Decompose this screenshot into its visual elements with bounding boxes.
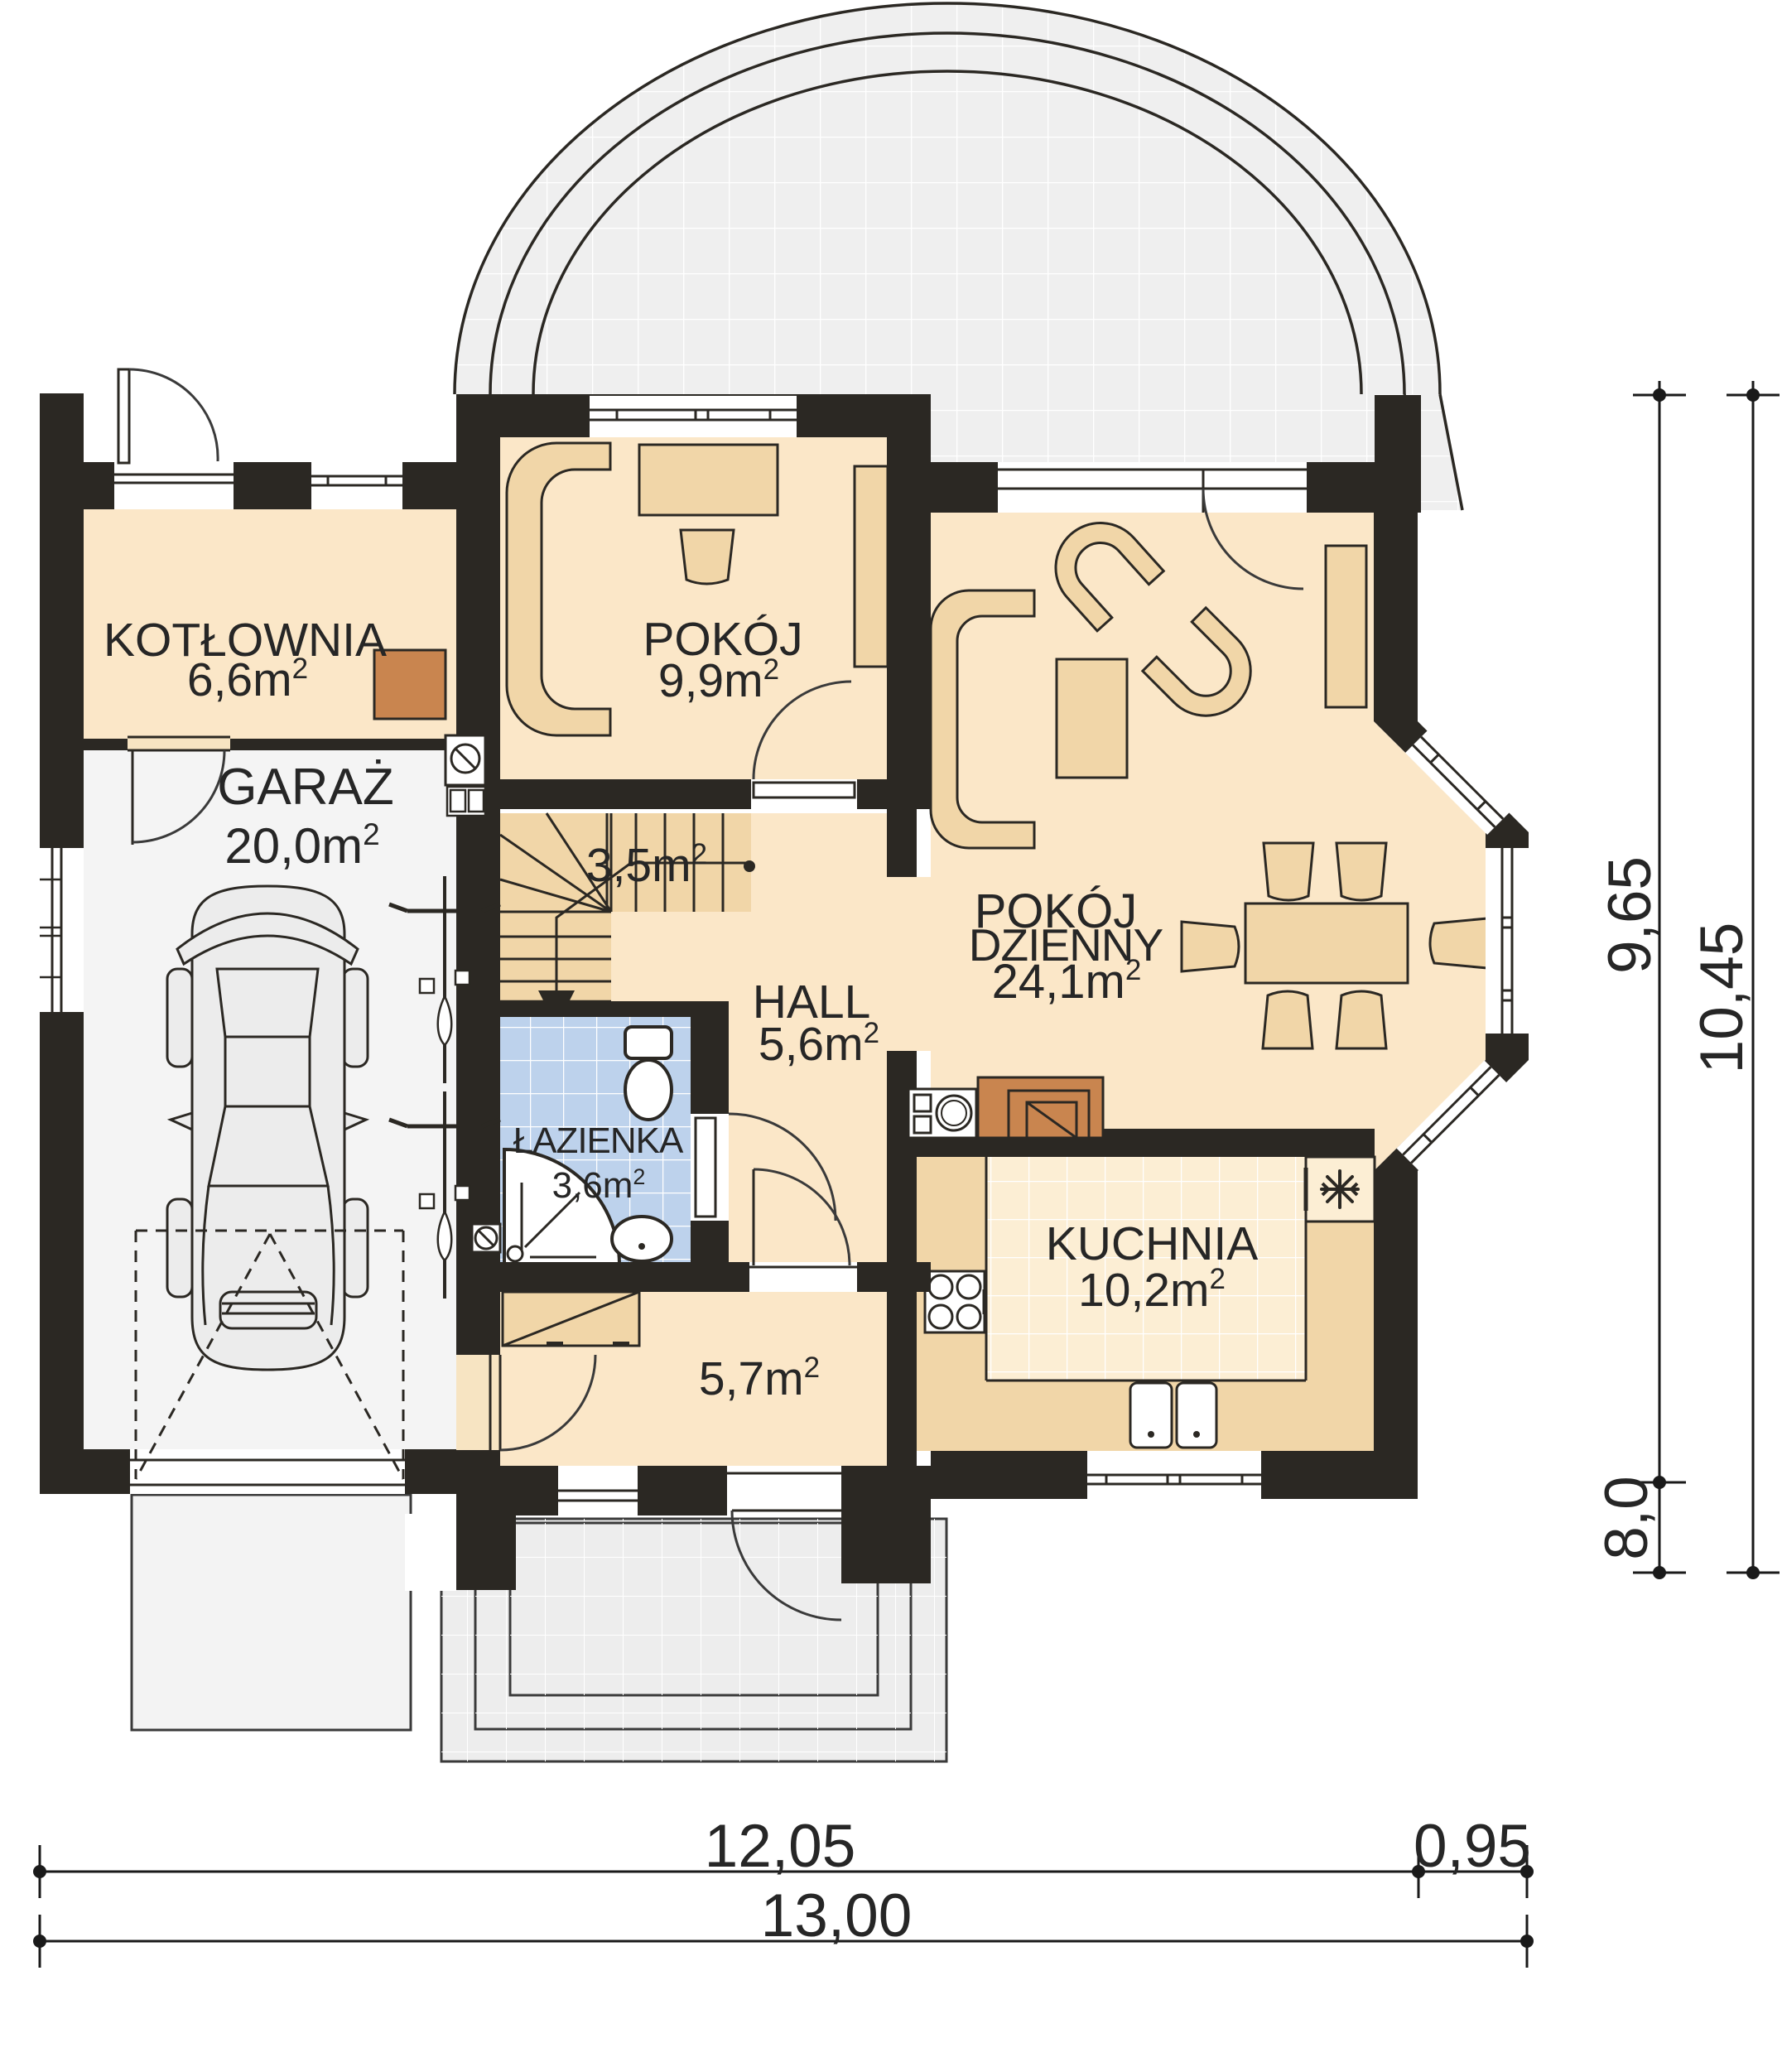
svg-text:GARAŻ: GARAŻ <box>217 759 394 816</box>
svg-text:10,45: 10,45 <box>1688 923 1756 1074</box>
svg-text:5,6m2: 5,6m2 <box>759 1017 879 1071</box>
svg-text:3,5m2: 3,5m2 <box>586 838 707 892</box>
svg-text:24,1m2: 24,1m2 <box>992 954 1142 1009</box>
svg-text:KUCHNIA: KUCHNIA <box>1046 1217 1259 1270</box>
svg-text:3,6m2: 3,6m2 <box>552 1164 646 1206</box>
svg-text:6,6m2: 6,6m2 <box>187 653 308 706</box>
svg-text:9,9m2: 9,9m2 <box>658 653 779 707</box>
svg-text:8,0: 8,0 <box>1593 1476 1660 1559</box>
svg-text:0,95: 0,95 <box>1414 1813 1531 1880</box>
svg-text:9,65: 9,65 <box>1597 856 1664 974</box>
svg-text:ŁAZIENKA: ŁAZIENKA <box>513 1120 684 1161</box>
svg-text:10,2m2: 10,2m2 <box>1078 1263 1226 1317</box>
svg-text:20,0m2: 20,0m2 <box>224 817 379 874</box>
svg-text:5,7m2: 5,7m2 <box>699 1352 820 1405</box>
svg-text:13,00: 13,00 <box>761 1882 913 1949</box>
svg-text:12,05: 12,05 <box>705 1813 856 1880</box>
